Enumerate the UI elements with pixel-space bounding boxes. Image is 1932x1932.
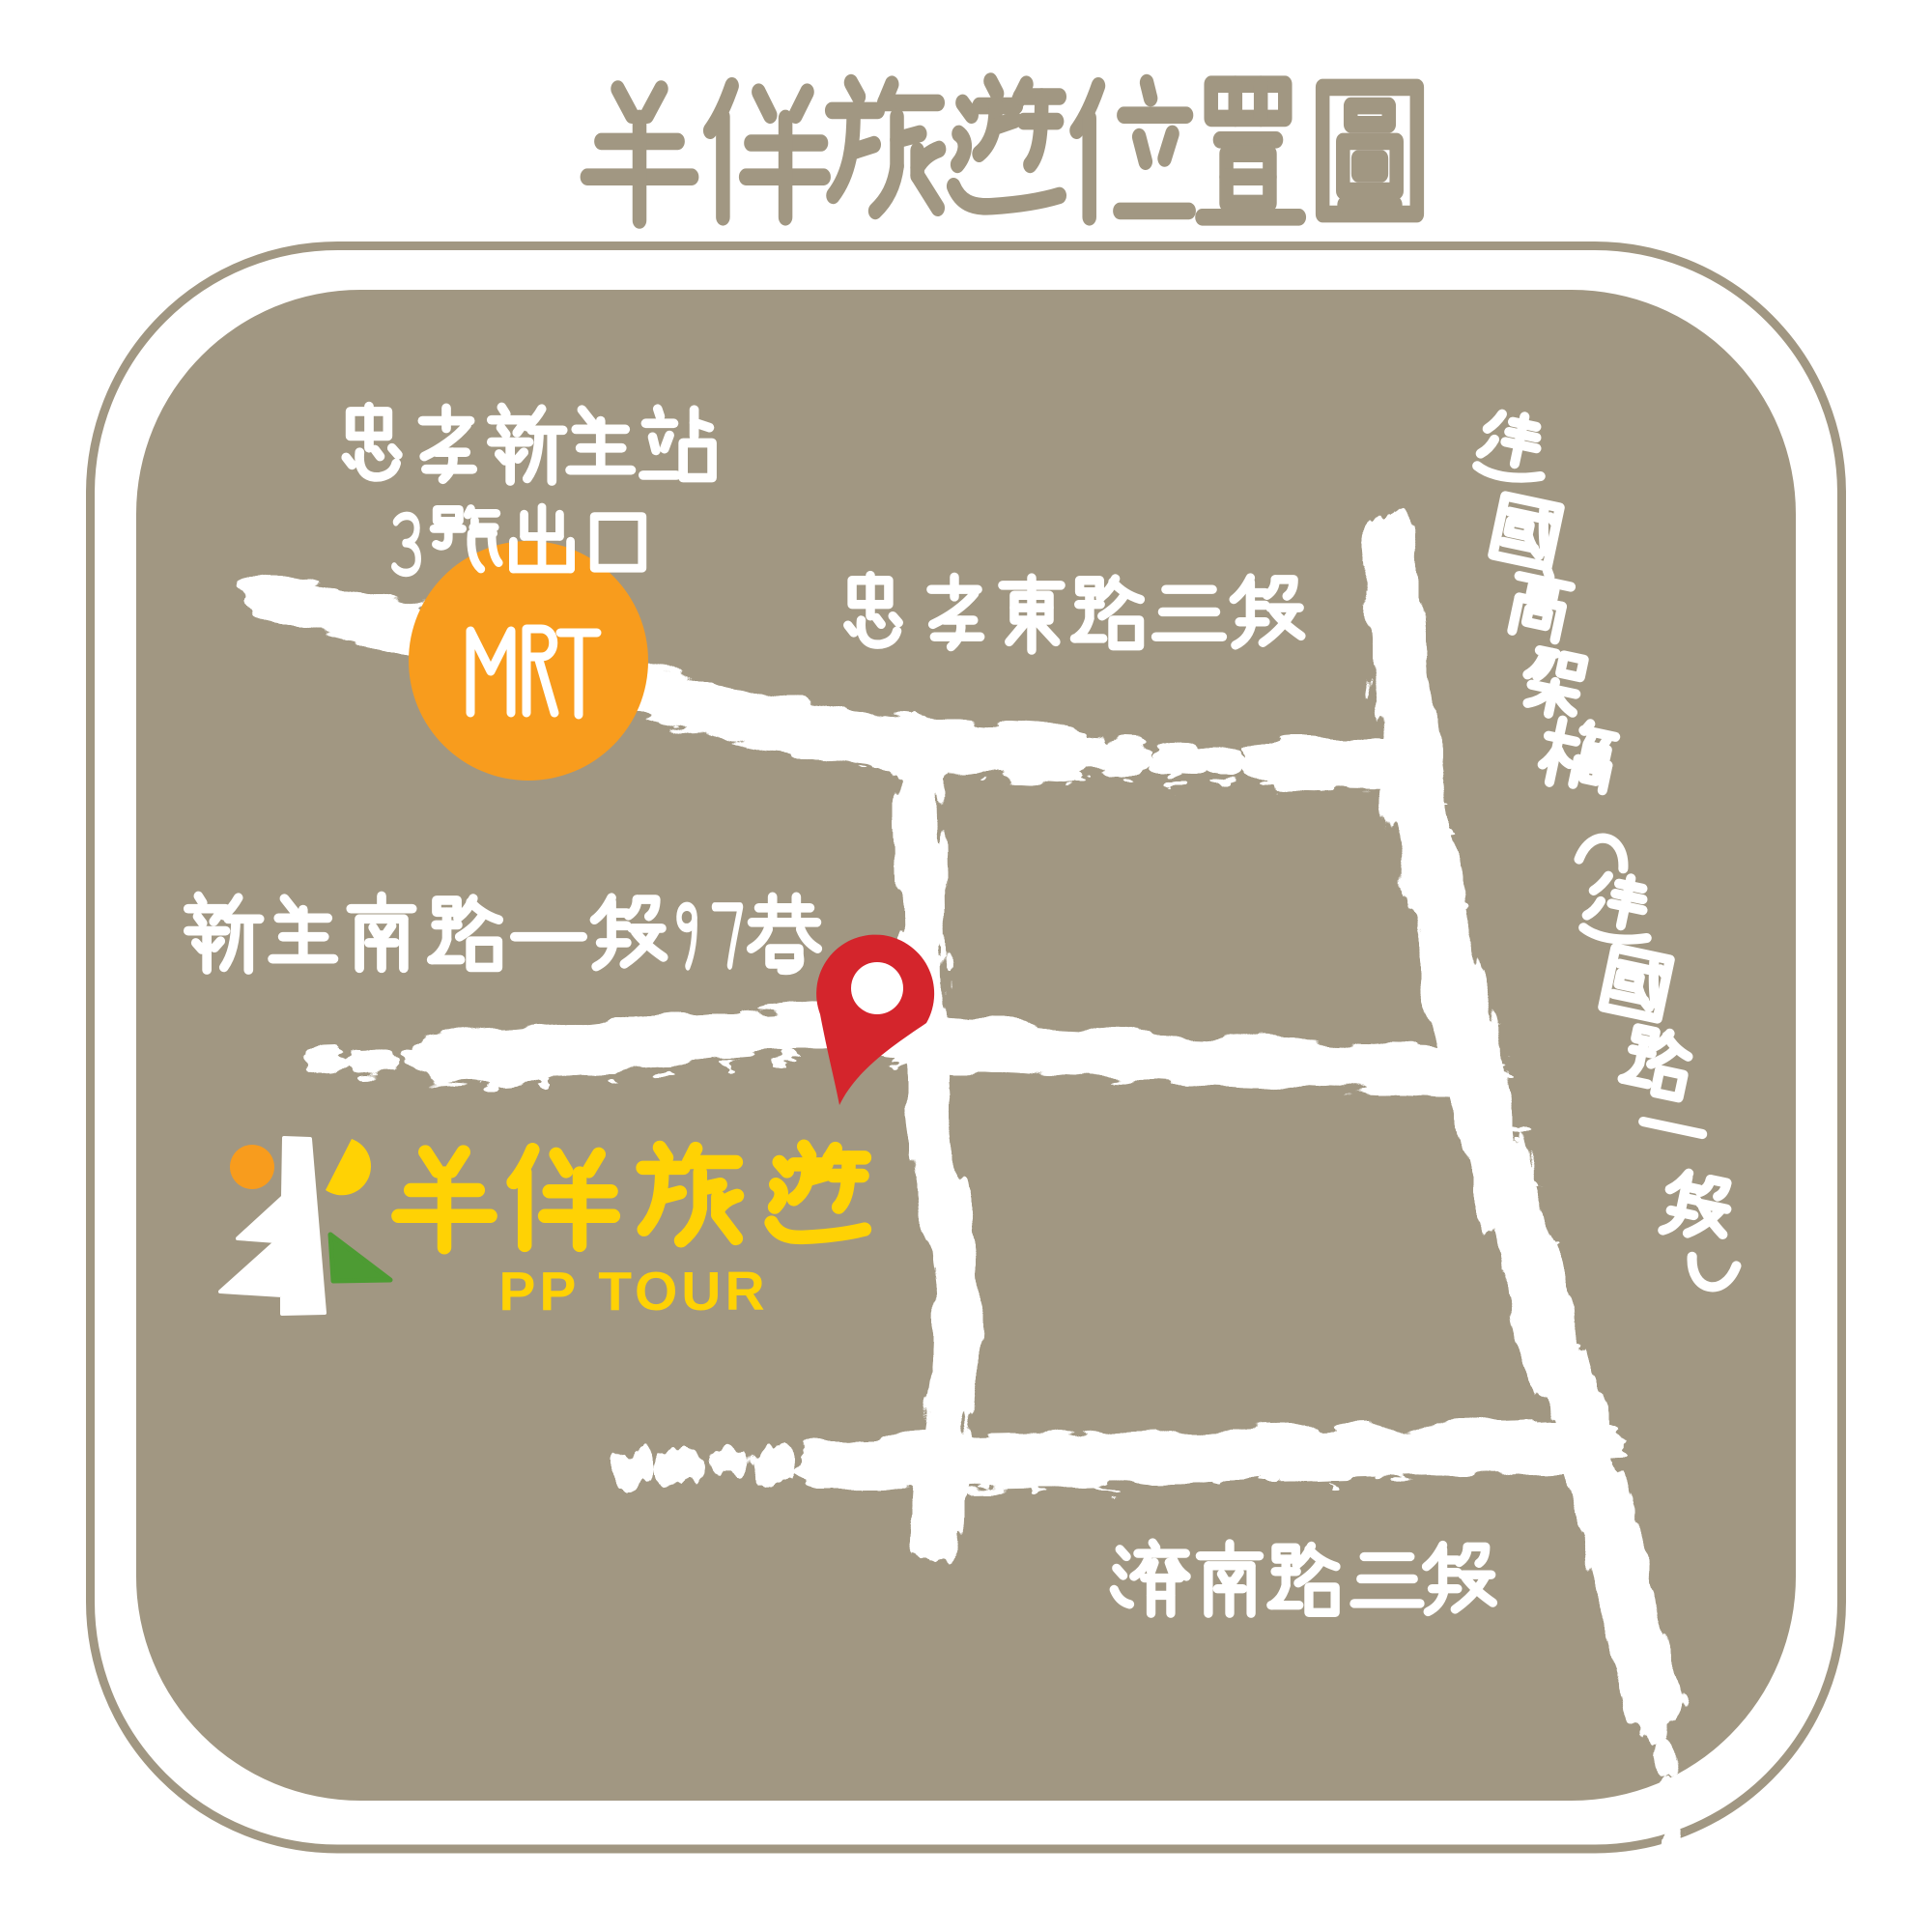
svg-text:PP TOUR: PP TOUR [498, 1261, 768, 1322]
